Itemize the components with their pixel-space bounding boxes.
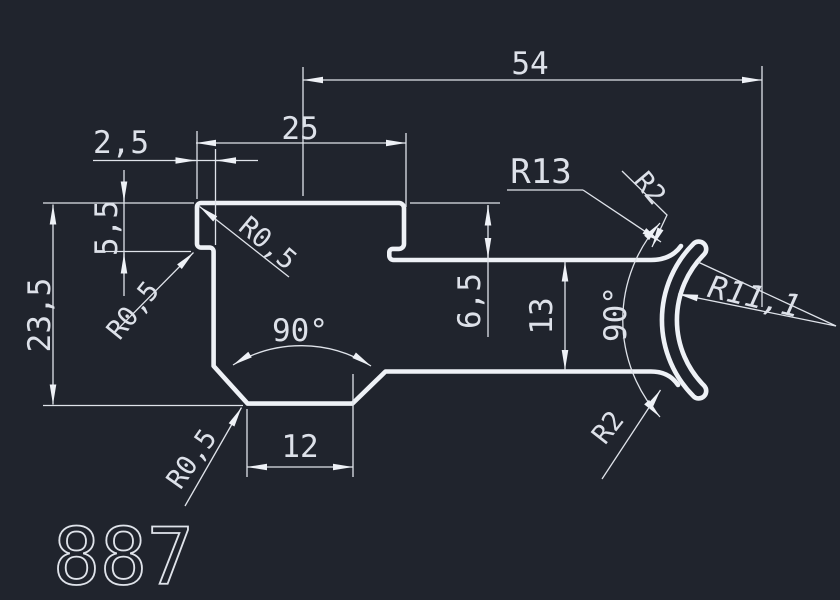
- angle-text-bottom: 90°: [272, 313, 328, 349]
- dim-text-6-5: 6,5: [452, 273, 488, 329]
- dim-text-25: 25: [281, 111, 318, 147]
- dim-text-5-5: 5,5: [89, 200, 125, 256]
- cad-canvas: 54 25 2,5 5,5 23,5 6,5 13 12 90° 90° R13…: [0, 0, 840, 600]
- dim-text-23-5: 23,5: [22, 278, 58, 353]
- part-number: 887: [53, 513, 194, 600]
- cad-drawing: 54 25 2,5 5,5 23,5 6,5 13 12 90° 90° R13…: [0, 0, 840, 600]
- dim-text-13: 13: [524, 297, 560, 334]
- dim-text-12: 12: [281, 429, 318, 465]
- radius-text-r13: R13: [510, 152, 571, 192]
- dim-text-54: 54: [511, 46, 548, 82]
- angle-text-right: 90°: [598, 286, 634, 342]
- dim-text-2-5: 2,5: [93, 125, 149, 161]
